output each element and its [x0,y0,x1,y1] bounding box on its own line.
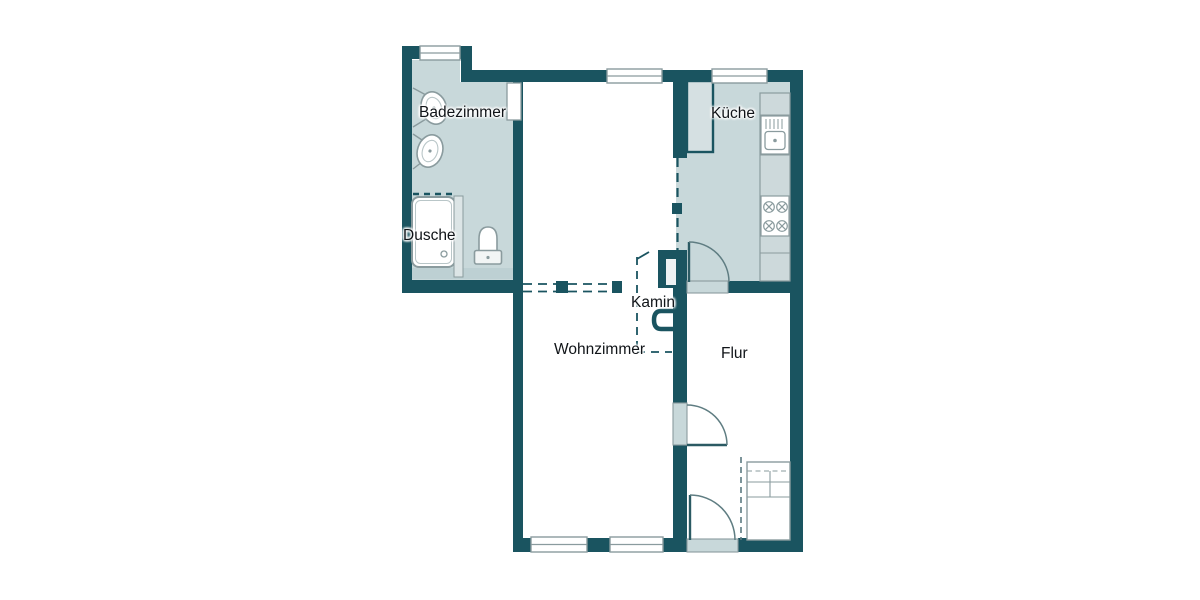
wardrobe [741,457,790,540]
wall-bottom-a [513,538,531,552]
wall-bay-top-left [402,46,420,59]
wall-kitchen-bottom [728,281,803,293]
wall-kitchen-living [673,70,687,158]
bathroom-window [420,46,460,60]
room-label-kueche: Küche [711,106,755,121]
livingroom-top-window [607,69,662,83]
wall-stub-removed-1 [556,281,568,293]
stove [761,196,789,236]
wall-bay-top-right [460,46,472,59]
wall-stub-kitchen [672,203,682,214]
wall-right [790,70,803,552]
fireplace-slot [666,259,676,285]
room-fills [412,60,790,538]
bathroom-bay-floor [412,60,460,82]
room-label-wohnzimmer: Wohnzimmer [554,342,645,357]
wall-living-hall-lower [673,445,687,538]
livingroom-bottom-window-1 [531,537,587,552]
room-label-kamin: Kamin [631,295,675,310]
room-label-badezimmer: Badezimmer [419,105,506,120]
interior-window-bathroom [507,83,521,120]
kitchen-niche [687,81,713,152]
livingroom-bottom-window-2 [610,537,663,552]
floor-plan-page: Badezimmer Dusche Küche Kamin Wohnzimmer… [0,0,1200,600]
wall-bottom-b [587,538,610,552]
wall-left [402,46,412,293]
room-label-dusche: Dusche [403,228,456,243]
kitchen-window [712,69,767,83]
floor-plan-drawing [0,0,1200,600]
kitchen-sink [761,116,789,154]
wall-bottom-c [663,538,687,552]
wall-bathroom-bottom [402,280,523,293]
wall-top-a [462,70,607,82]
wall-living-hall-upper [673,288,687,403]
kitchen-fixtures [760,93,790,281]
wall-stub-removed-2 [612,281,622,293]
wall-bathroom-living [513,82,523,552]
room-label-flur: Flur [721,346,748,361]
